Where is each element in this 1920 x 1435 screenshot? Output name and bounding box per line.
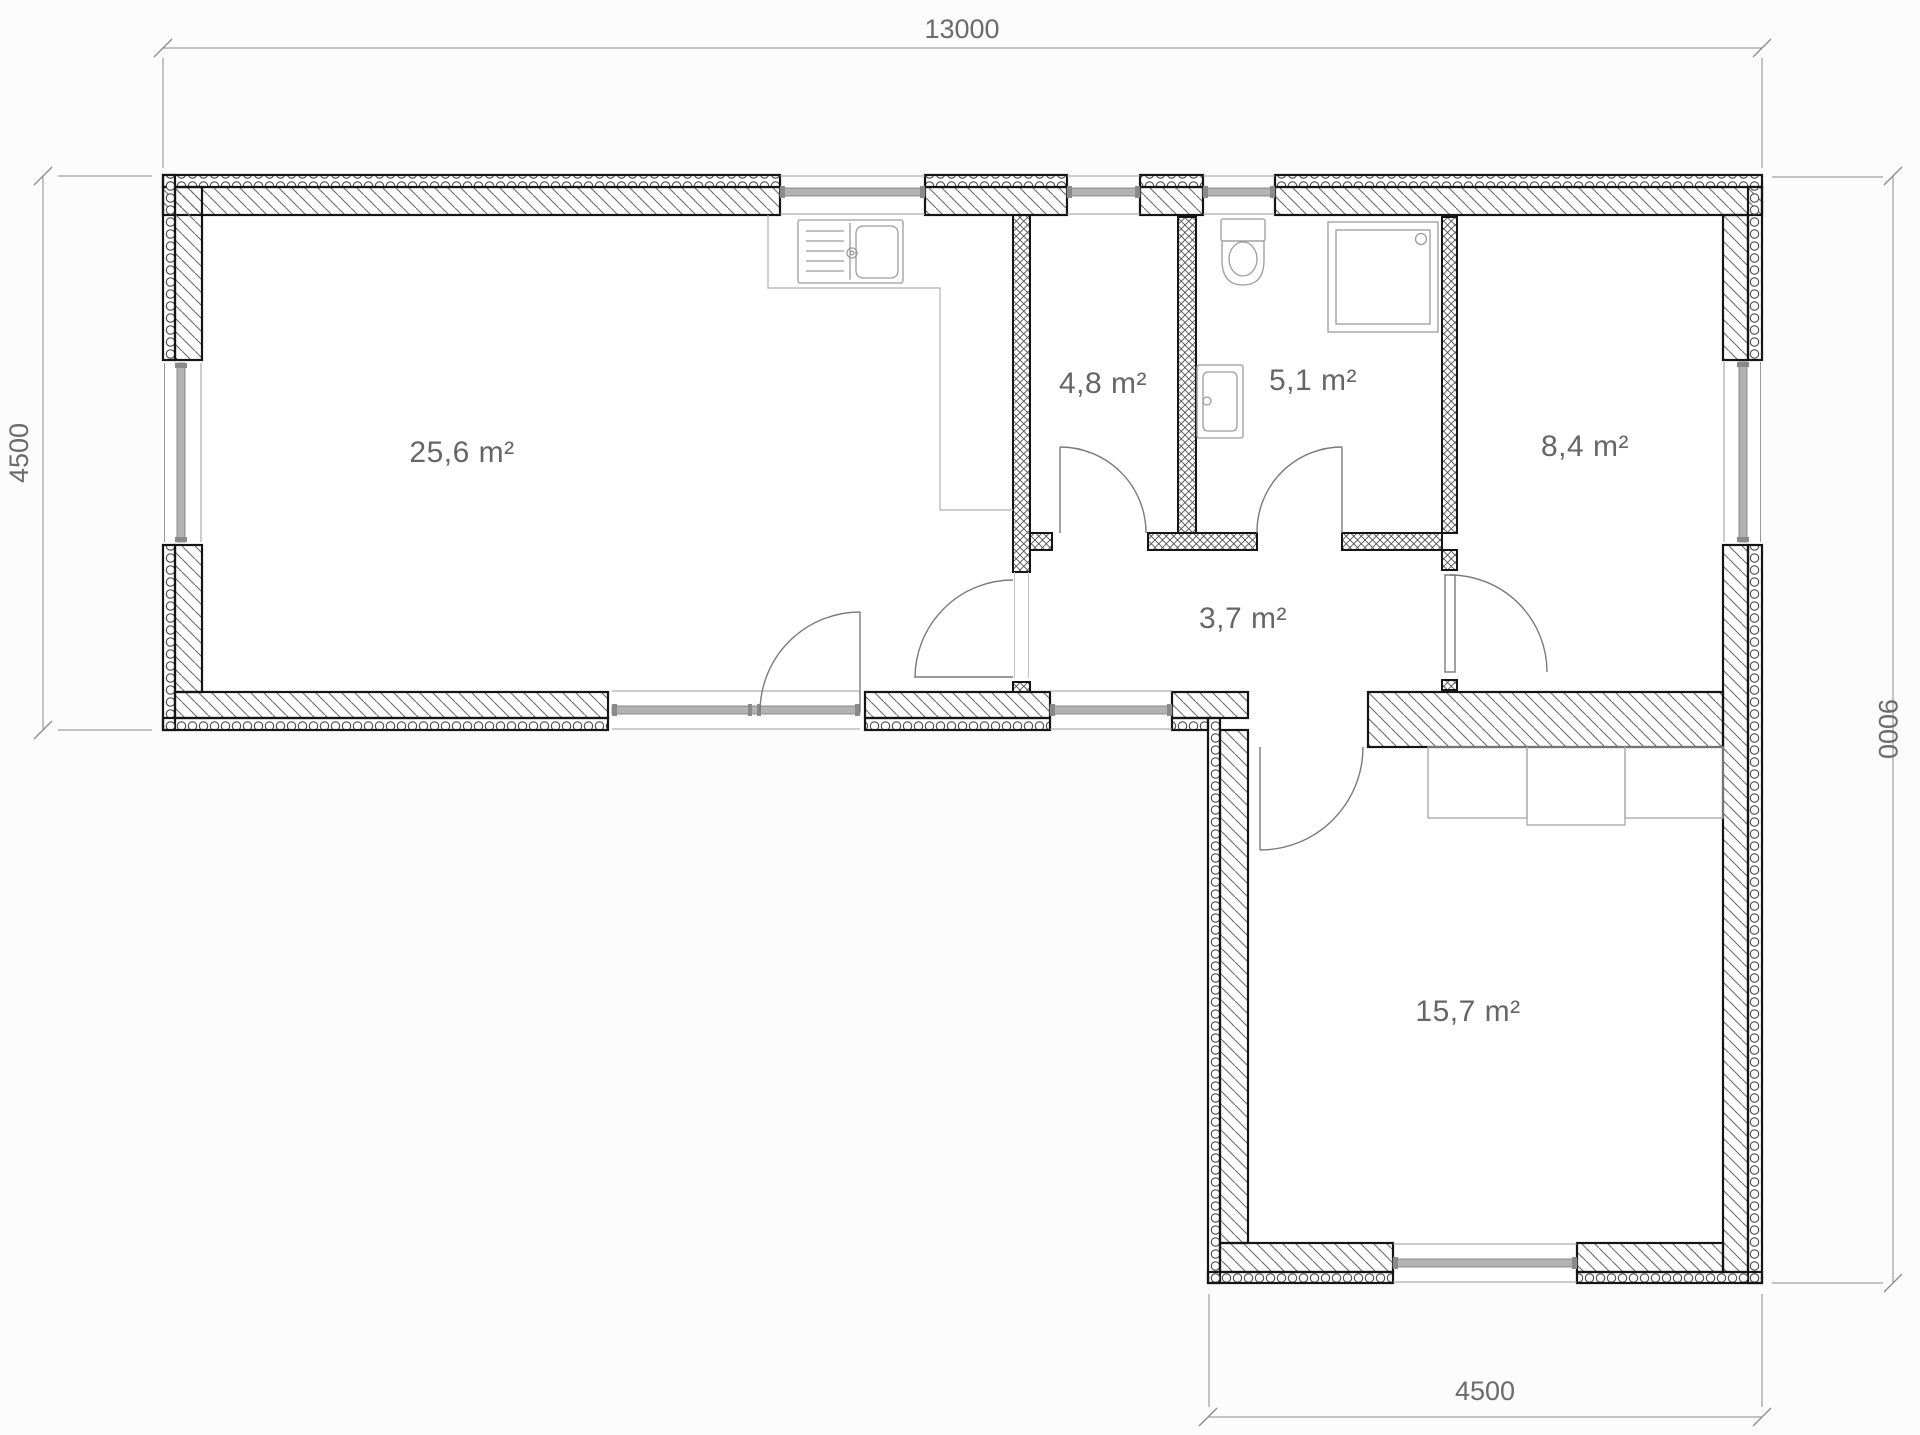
wall-stub-84-top <box>1442 550 1457 570</box>
wall-right <box>1723 187 1762 1283</box>
dimension-left <box>34 167 152 739</box>
dim-label-bottom: 4500 <box>1455 1376 1515 1406</box>
dim-label-left: 4500 <box>4 423 34 483</box>
dimension-top <box>154 39 1771 168</box>
room-label-157: 15,7 m² <box>1415 995 1520 1028</box>
room-label-51: 5,1 m² <box>1269 364 1357 397</box>
dim-label-top: 13000 <box>924 14 999 44</box>
wall-48-51 <box>1178 217 1196 533</box>
wall-kitchen-hall <box>1013 215 1030 572</box>
room-label-living: 25,6 m² <box>409 436 514 469</box>
floor-plan-drawing: 25,6 m² 4,8 m² 5,1 m² 8,4 m² 3,7 m² 15,7… <box>0 0 1920 1435</box>
dimension-bottom <box>1199 1294 1771 1426</box>
wall-51-84 <box>1442 217 1457 533</box>
dim-label-right: 9000 <box>1873 699 1903 759</box>
wall-stub-hall <box>1013 682 1030 692</box>
wall-stub-84-btm <box>1442 680 1457 690</box>
room-label-hall: 3,7 m² <box>1199 602 1287 635</box>
wall-stub-48-south <box>1030 533 1052 550</box>
wall-84-157 <box>1368 692 1723 747</box>
wall-south-block-c <box>1342 533 1442 550</box>
room-label-48: 4,8 m² <box>1059 367 1147 400</box>
room-label-84: 8,4 m² <box>1541 430 1629 463</box>
wall-wing-west <box>1208 718 1248 1283</box>
wall-south-block-b <box>1148 533 1257 550</box>
floor-plan-canvas: 25,6 m² 4,8 m² 5,1 m² 8,4 m² 3,7 m² 15,7… <box>0 0 1920 1435</box>
wall-top <box>163 175 1762 215</box>
